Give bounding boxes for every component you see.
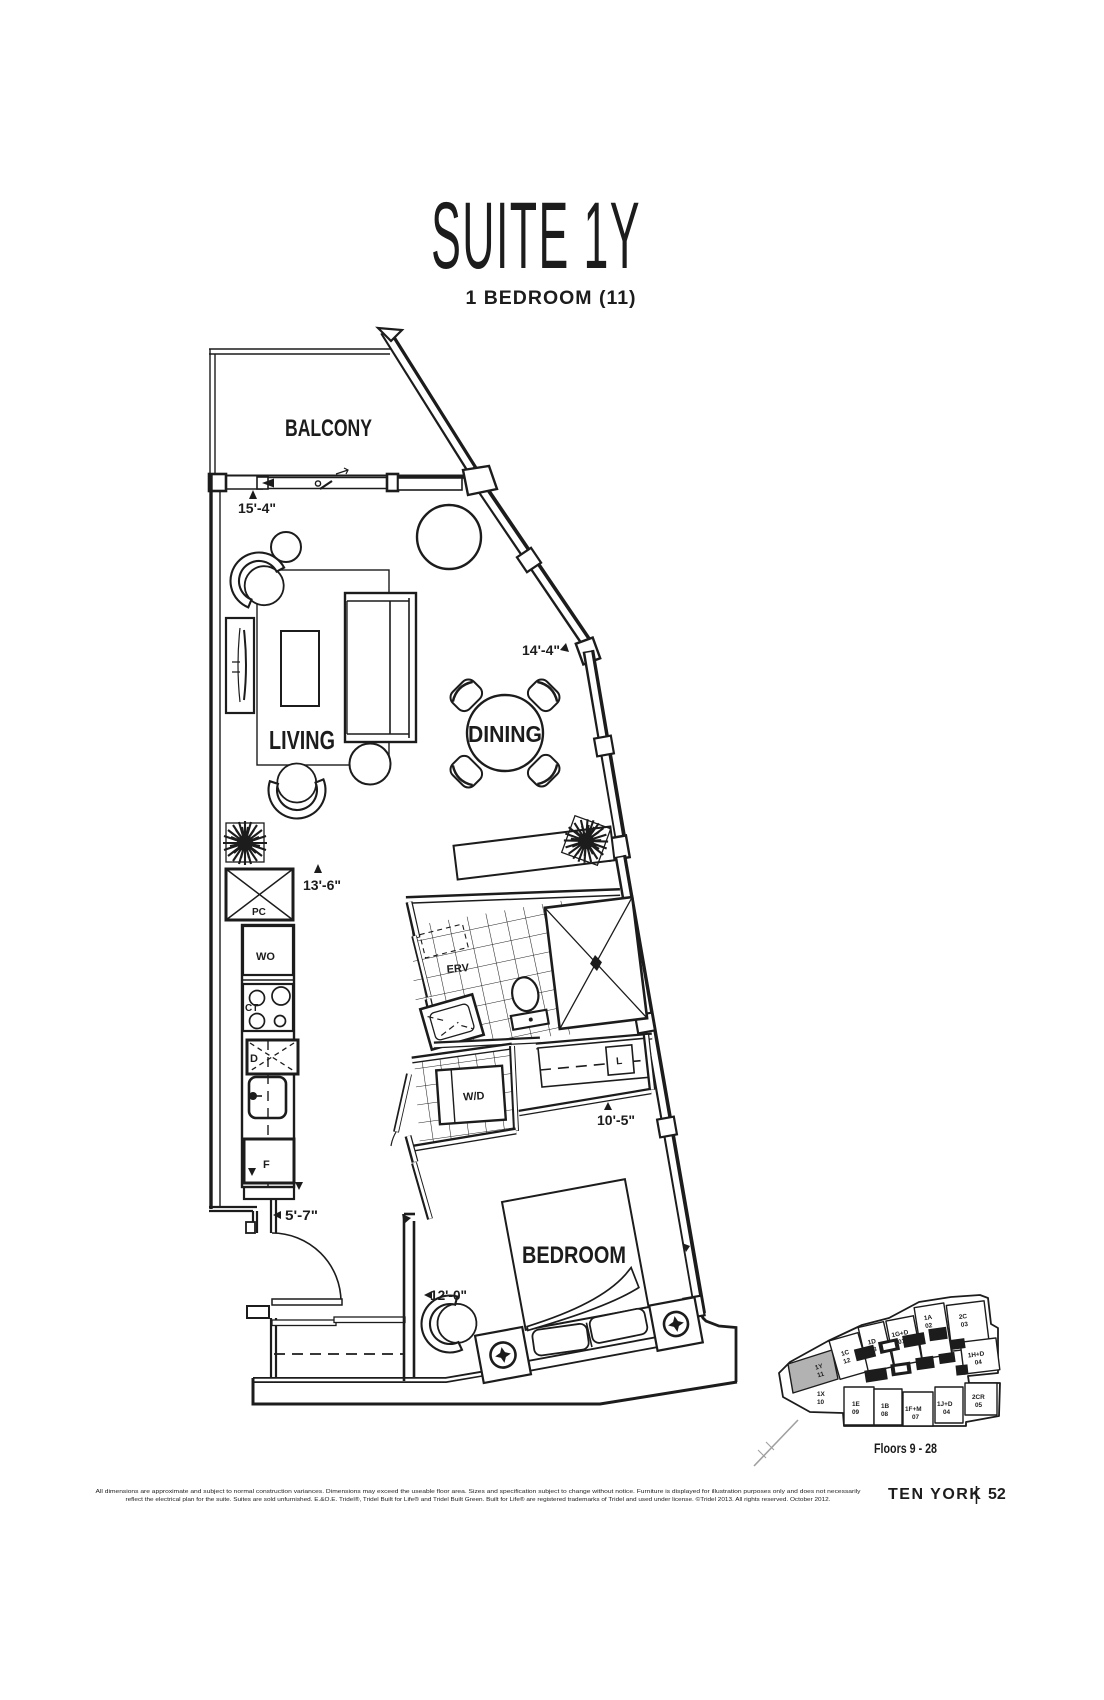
svg-text:12'-0": 12'-0" [430, 1288, 467, 1303]
svg-text:13'-6": 13'-6" [303, 878, 341, 893]
svg-text:ERV: ERV [446, 962, 470, 976]
svg-text:D: D [250, 1053, 258, 1065]
svg-text:SUITE 1Y: SUITE 1Y [431, 182, 641, 288]
svg-text:09: 09 [852, 1409, 860, 1416]
svg-text:10'-5": 10'-5" [597, 1113, 635, 1128]
svg-text:07: 07 [912, 1414, 920, 1421]
svg-text:2CR: 2CR [972, 1394, 985, 1401]
svg-text:04: 04 [974, 1359, 982, 1367]
svg-text:1 BEDROOM (11): 1 BEDROOM (11) [465, 287, 636, 309]
svg-text:04: 04 [943, 1409, 951, 1416]
svg-text:reflect the electrical plan fo: reflect the electrical plan for the suit… [126, 1496, 831, 1503]
svg-text:15'-4": 15'-4" [238, 501, 276, 516]
svg-text:BEDROOM: BEDROOM [522, 1242, 626, 1269]
svg-text:1F+M: 1F+M [905, 1406, 922, 1413]
svg-text:08: 08 [881, 1411, 889, 1418]
svg-text:PC: PC [252, 907, 266, 918]
svg-text:1X: 1X [817, 1391, 826, 1398]
svg-text:1A: 1A [923, 1314, 933, 1322]
svg-text:LIVING: LIVING [269, 725, 335, 755]
svg-text:14'-4": 14'-4" [522, 643, 560, 658]
svg-text:1E: 1E [852, 1401, 861, 1408]
svg-text:52: 52 [988, 1486, 1006, 1503]
svg-text:DINING: DINING [468, 721, 542, 747]
svg-text:|: | [974, 1484, 979, 1505]
svg-text:1J+D: 1J+D [937, 1401, 953, 1408]
svg-text:W/D: W/D [463, 1090, 485, 1103]
svg-text:1B: 1B [881, 1403, 890, 1410]
svg-text:WO: WO [256, 951, 275, 963]
svg-text:F: F [263, 1159, 270, 1171]
svg-text:L: L [616, 1056, 623, 1067]
svg-text:CT: CT [245, 1003, 258, 1014]
svg-text:Floors 9 - 28: Floors 9 - 28 [874, 1441, 937, 1456]
svg-text:10: 10 [817, 1399, 825, 1406]
svg-text:05: 05 [975, 1402, 983, 1409]
svg-text:All dimensions are approximate: All dimensions are approximate and subje… [96, 1489, 861, 1495]
svg-text:TEN YORK: TEN YORK [888, 1486, 982, 1503]
svg-text:03: 03 [960, 1321, 968, 1329]
svg-text:2C: 2C [958, 1313, 967, 1321]
svg-text:BALCONY: BALCONY [285, 415, 372, 442]
svg-text:5'-7": 5'-7" [285, 1208, 318, 1223]
